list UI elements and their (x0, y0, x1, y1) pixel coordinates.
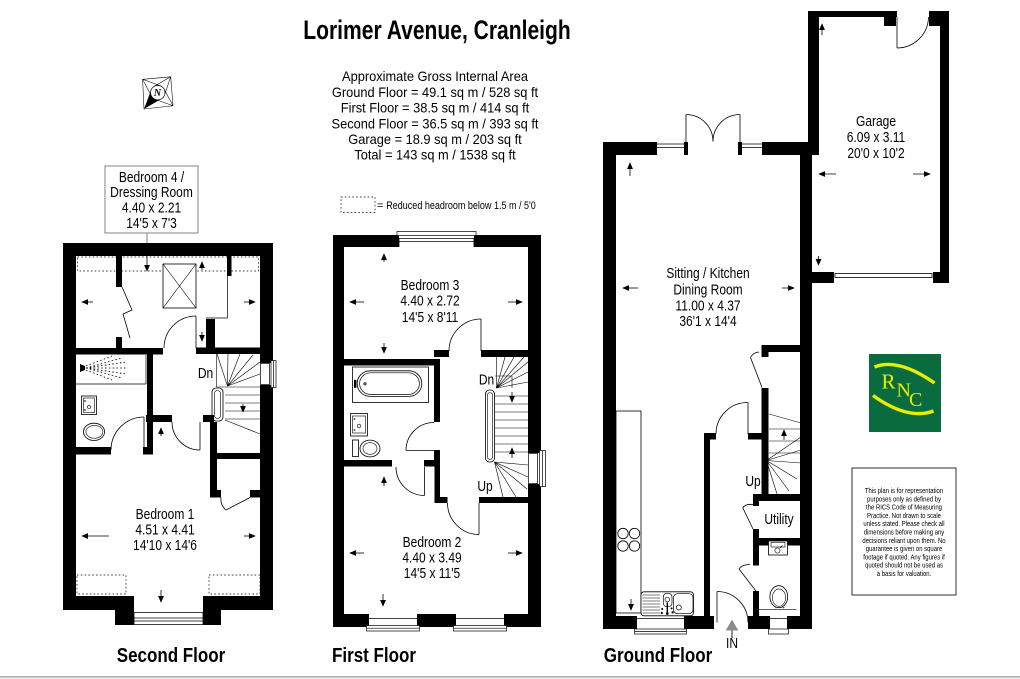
svg-text:the RICS Code of Measuring: the RICS Code of Measuring (866, 504, 942, 512)
svg-text:Dressing Room: Dressing Room (110, 184, 193, 201)
svg-text:14'5 x 8'11: 14'5 x 8'11 (402, 309, 458, 326)
svg-text:4.40 x 2.72: 4.40 x 2.72 (400, 292, 459, 309)
svg-text:=: = (377, 200, 383, 212)
svg-text:This plan is for representatio: This plan is for representation (865, 488, 944, 496)
svg-text:quoted should not be used as: quoted should not be used as (865, 562, 944, 570)
svg-text:6.09 x 3.11: 6.09 x 3.11 (847, 129, 905, 146)
svg-text:Second Floor = 36.5 sq m / 393: Second Floor = 36.5 sq m / 393 sq ft (332, 116, 539, 131)
svg-text:footage if quoted. Any figures: footage if quoted. Any figures if (863, 554, 945, 562)
svg-text:4.51 x 4.41: 4.51 x 4.41 (135, 521, 194, 538)
svg-text:Utility: Utility (764, 511, 794, 528)
svg-text:Ground Floor = 49.1 sq m / 528: Ground Floor = 49.1 sq m / 528 sq ft (332, 85, 539, 100)
svg-text:Garage = 18.9 sq m / 203 sq ft: Garage = 18.9 sq m / 203 sq ft (348, 132, 522, 147)
svg-text:Sitting / Kitchen: Sitting / Kitchen (666, 265, 749, 282)
svg-text:Up: Up (745, 473, 760, 490)
svg-text:Bedroom 2: Bedroom 2 (403, 534, 462, 551)
svg-text:Approximate Gross Internal Are: Approximate Gross Internal Area (342, 69, 529, 84)
svg-text:20'0 x 10'2: 20'0 x 10'2 (847, 145, 904, 162)
svg-text:unless stated. Please check al: unless stated. Please check all (863, 521, 944, 529)
svg-text:decisions reliant upon them. N: decisions reliant upon them. No (862, 537, 946, 545)
svg-text:Lorimer Avenue, Cranleigh: Lorimer Avenue, Cranleigh (303, 16, 571, 46)
svg-text:Garage: Garage (856, 113, 896, 130)
svg-text:Bedroom 1: Bedroom 1 (136, 506, 195, 523)
svg-text:IN: IN (726, 635, 738, 652)
svg-text:4.40 x 2.21: 4.40 x 2.21 (122, 199, 181, 216)
svg-text:First Floor: First Floor (332, 644, 416, 667)
svg-text:Reduced headroom below 1.5 m /: Reduced headroom below 1.5 m / 5'0 (386, 200, 536, 212)
svg-text:guarantee is given on square: guarantee is given on square (866, 546, 943, 554)
svg-text:C: C (909, 389, 922, 411)
svg-text:a basis for valuation.: a basis for valuation. (877, 571, 932, 579)
svg-text:Ground Floor: Ground Floor (604, 644, 713, 667)
svg-text:14'10 x 14'6: 14'10 x 14'6 (133, 537, 197, 554)
svg-text:purposes only as defined by: purposes only as defined by (867, 496, 942, 504)
svg-text:14'5 x 7'3: 14'5 x 7'3 (126, 215, 177, 232)
svg-text:Dn: Dn (198, 365, 213, 382)
svg-text:Practice. Not drawn to scale: Practice. Not drawn to scale (867, 513, 941, 521)
svg-text:36'1 x 14'4: 36'1 x 14'4 (679, 313, 737, 330)
svg-text:N: N (153, 88, 162, 99)
svg-text:Bedroom 3: Bedroom 3 (401, 277, 460, 294)
svg-text:R: R (882, 370, 896, 394)
svg-text:Dn: Dn (479, 371, 494, 388)
svg-text:4.40 x 3.49: 4.40 x 3.49 (402, 549, 461, 566)
svg-text:Up: Up (477, 478, 492, 495)
svg-text:dimensions before making any: dimensions before making any (864, 529, 945, 537)
svg-text:Total = 143 sq m / 1538 sq ft: Total = 143 sq m / 1538 sq ft (354, 147, 516, 162)
svg-text:Second Floor: Second Floor (117, 644, 226, 667)
svg-text:11.00 x 4.37: 11.00 x 4.37 (675, 297, 740, 314)
svg-text:Dining Room: Dining Room (673, 281, 742, 298)
svg-text:First Floor = 38.5 sq m / 414: First Floor = 38.5 sq m / 414 sq ft (341, 100, 530, 115)
svg-text:14'5 x 11'5: 14'5 x 11'5 (404, 565, 460, 582)
